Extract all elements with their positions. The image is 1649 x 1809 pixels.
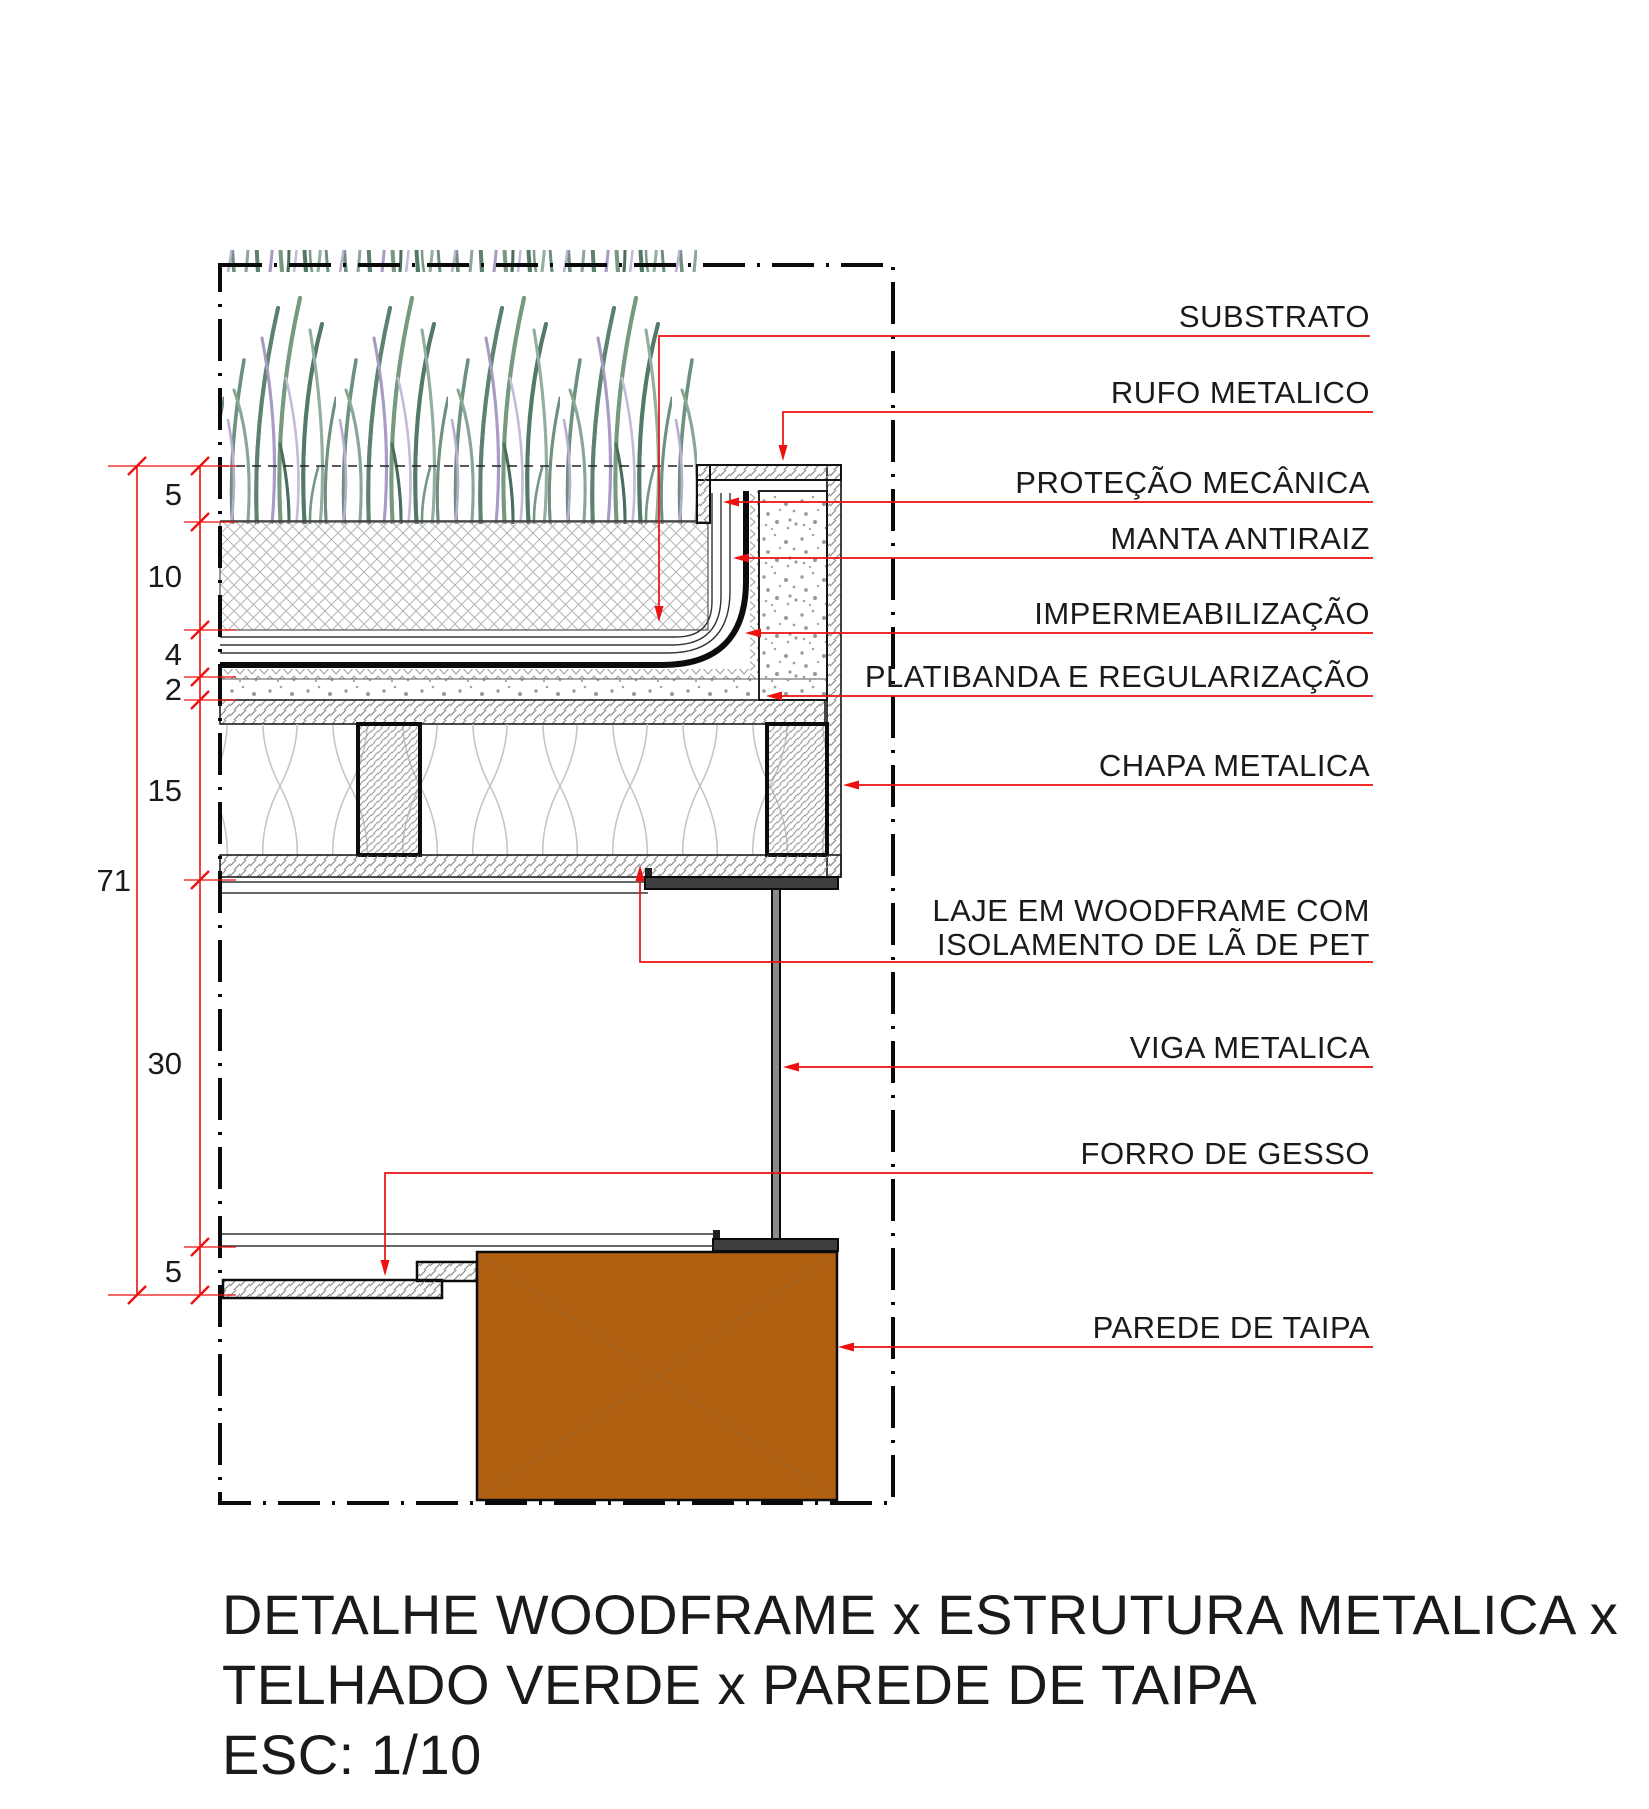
dimension-values: 5 10 4 2 15 30 5 71 [97, 477, 182, 1289]
label-protecao-mecanica: PROTEÇÃO MECÂNICA [1015, 465, 1370, 500]
beam-top-plate-lip [645, 868, 652, 877]
platibanda-column [759, 491, 827, 700]
beam-bottom-plate-lip [713, 1230, 720, 1239]
separation-band-vertical [750, 491, 759, 679]
pet-insulation [220, 724, 825, 855]
label-platibanda: PLATIBANDA E REGULARIZAÇÃO [865, 659, 1370, 694]
label-laje-line1: LAJE EM WOODFRAME COM [932, 893, 1370, 928]
dim-substrato: 5 [165, 477, 182, 512]
dim-forro: 5 [165, 1254, 182, 1289]
title-line-2: TELHADO VERDE x PAREDE DE TAIPA [222, 1653, 1257, 1716]
label-parede-taipa: PAREDE DE TAIPA [1093, 1310, 1370, 1345]
label-rufo-metalico: RUFO METALICO [1111, 375, 1370, 410]
rufo-cap-left-drop [697, 465, 710, 523]
gypsum-board-main [223, 1280, 442, 1298]
wood-stud-left [358, 724, 420, 855]
wood-stud-right [767, 724, 827, 855]
label-impermeabilizacao: IMPERMEABILIZAÇÃO [1034, 596, 1370, 631]
dim-drenagem: 10 [148, 559, 182, 594]
detail-sheet: 5 10 4 2 15 30 5 71 SUBSTRATO [0, 0, 1649, 1809]
beam-bottom-plate [713, 1239, 838, 1251]
separation-band-horizontal [220, 669, 750, 679]
label-viga-metalica: VIGA METALICA [1130, 1030, 1370, 1065]
woodframe-slab [220, 700, 841, 893]
substrate-layer [220, 522, 708, 630]
label-forro-gesso: FORRO DE GESSO [1081, 1136, 1370, 1171]
dim-total: 71 [97, 863, 131, 898]
label-laje-line2: ISOLAMENTO DE LÃ DE PET [937, 927, 1370, 962]
beam-web [772, 889, 780, 1239]
dim-laje: 15 [148, 773, 182, 808]
steel-beam [645, 868, 838, 1251]
title-line-1: DETALHE WOODFRAME x ESTRUTURA METALICA x [222, 1583, 1618, 1646]
grass-illustration [164, 250, 697, 524]
annotation-labels: SUBSTRATO RUFO METALICO PROTEÇÃO MECÂNIC… [865, 299, 1370, 1345]
beam-top-plate [645, 877, 838, 889]
slab-top-board [220, 700, 825, 724]
slab-bottom-board [220, 855, 841, 877]
dim-regularizacao: 2 [165, 672, 182, 707]
label-manta-antiraiz: MANTA ANTIRAIZ [1110, 521, 1370, 556]
chapa-metalica-sheet [827, 465, 841, 877]
title-scale: ESC: 1/10 [222, 1723, 482, 1786]
rufo-cap-top [697, 465, 841, 480]
label-substrato: SUBSTRATO [1179, 299, 1370, 334]
regularization-screed [220, 679, 827, 700]
dim-pe-direito: 30 [148, 1046, 182, 1081]
taipa-wall [477, 1252, 837, 1500]
label-chapa-metalica: CHAPA METALICA [1099, 748, 1370, 783]
construction-detail-drawing: 5 10 4 2 15 30 5 71 SUBSTRATO [0, 0, 1649, 1809]
dim-mantas: 4 [165, 637, 182, 672]
title-block: DETALHE WOODFRAME x ESTRUTURA METALICA x… [222, 1583, 1618, 1786]
gypsum-board-step [417, 1262, 477, 1281]
